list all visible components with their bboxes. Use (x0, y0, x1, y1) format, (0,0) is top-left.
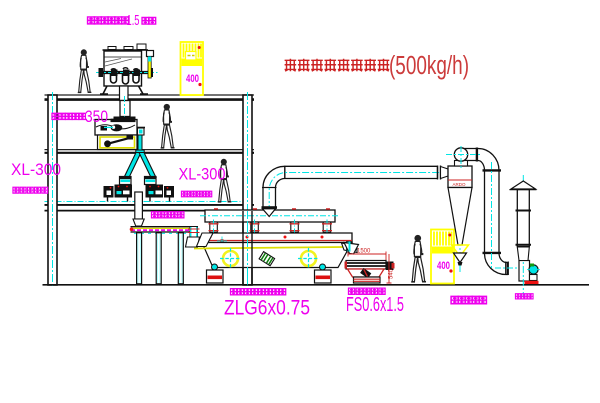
svg-text:400: 400 (437, 260, 450, 272)
svg-text:XL-300: XL-300 (179, 165, 226, 184)
svg-text:540: 540 (389, 268, 395, 279)
svg-text:ZLG6x0.75: ZLG6x0.75 (224, 297, 310, 320)
svg-text:1500: 1500 (357, 249, 371, 255)
svg-text:400: 400 (186, 73, 199, 85)
svg-text:1.5: 1.5 (127, 12, 140, 29)
svg-text:(500kg/h): (500kg/h) (389, 52, 469, 80)
svg-text:ARDO: ARDO (453, 182, 467, 187)
svg-text:350: 350 (85, 107, 108, 126)
svg-text:XL-300: XL-300 (11, 160, 61, 179)
svg-text:FS0.6x1.5: FS0.6x1.5 (346, 294, 404, 316)
